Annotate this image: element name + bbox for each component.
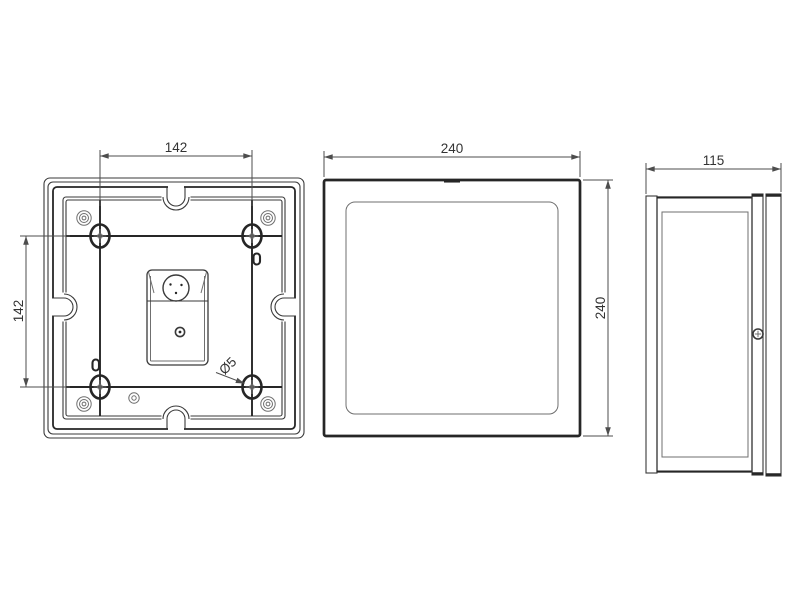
side-view: 115 bbox=[646, 153, 781, 476]
cable-notch-top bbox=[162, 185, 191, 210]
technical-drawing: 142 142 Ø5 240 240 bbox=[0, 0, 800, 600]
side-back-plate bbox=[646, 196, 657, 473]
side-body-edges bbox=[657, 198, 752, 472]
back-frame-2 bbox=[48, 182, 300, 434]
back-view: 142 142 Ø5 bbox=[11, 140, 304, 438]
dim-front-height-label: 240 bbox=[593, 297, 608, 320]
cable-notch-left bbox=[52, 293, 78, 322]
dim-front-width-label: 240 bbox=[441, 141, 464, 156]
dimension-back-height: 142 bbox=[11, 236, 70, 387]
side-body-inner bbox=[662, 212, 748, 457]
keyhole-slot-right bbox=[254, 254, 261, 265]
side-screw bbox=[753, 329, 763, 339]
dimension-front-height: 240 bbox=[583, 180, 613, 436]
cable-notch-right bbox=[271, 293, 297, 322]
cable-knockout bbox=[163, 275, 189, 301]
drawing-canvas: 142 142 Ø5 240 240 bbox=[0, 0, 800, 600]
dim-side-depth-label: 115 bbox=[703, 153, 725, 168]
dimension-side-depth: 115 bbox=[646, 153, 781, 194]
dimension-front-width: 240 bbox=[324, 141, 580, 177]
keyhole-slot-left bbox=[93, 360, 100, 371]
front-frame bbox=[324, 180, 580, 436]
side-front-strip bbox=[766, 194, 781, 476]
side-body bbox=[657, 197, 752, 472]
compartment-screw bbox=[175, 327, 184, 336]
corner-bosses bbox=[77, 211, 275, 411]
cable-notch-bottom bbox=[162, 406, 191, 431]
mounting-holes bbox=[91, 225, 262, 399]
terminal-compartment bbox=[147, 270, 208, 365]
back-inner-wall-inner bbox=[66, 200, 282, 416]
front-view: 240 240 bbox=[324, 141, 613, 436]
dimension-hole-diameter: Ø5 bbox=[216, 354, 245, 383]
dim-back-width-label: 142 bbox=[165, 140, 188, 155]
mounting-grid bbox=[66, 200, 282, 416]
pilot-hole bbox=[129, 393, 139, 403]
dim-back-height-label: 142 bbox=[11, 300, 26, 323]
front-diffuser bbox=[346, 202, 558, 414]
